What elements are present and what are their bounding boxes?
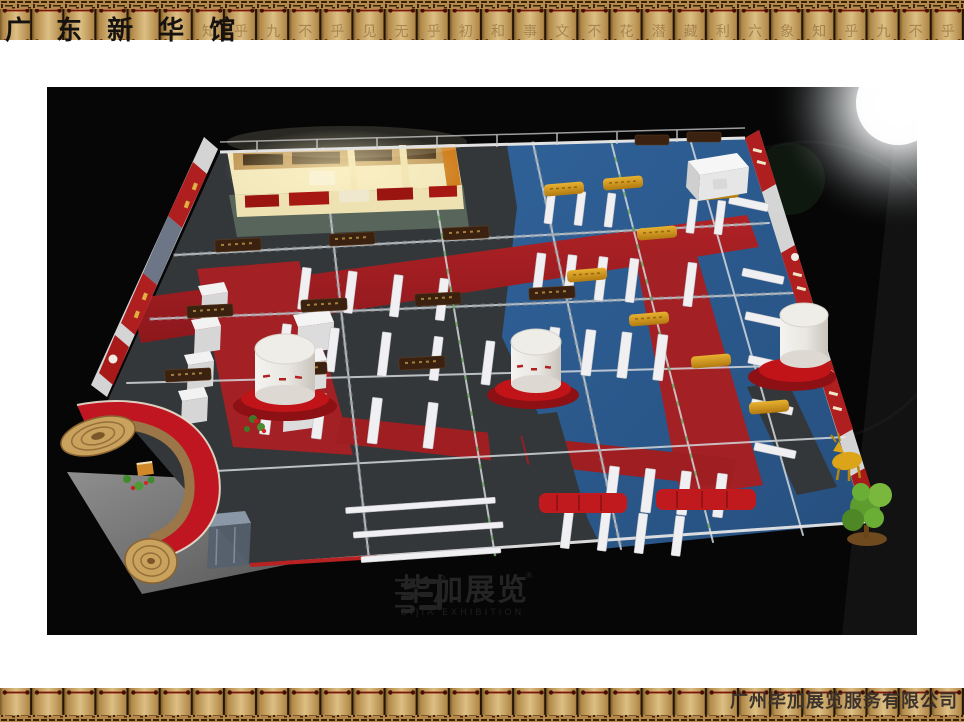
footer-company-name: 广州毕加展览服务有限公司 bbox=[730, 687, 958, 713]
top-border: 知乎九不乎见无乎初和事文不花潜藏利六象知乎九不乎 广 东 新 华 馆 bbox=[0, 0, 964, 40]
meander-band bbox=[0, 715, 964, 722]
exhibition-render: 毕加展览 BIJIA EXHIBITION ® bbox=[47, 87, 917, 635]
render-scene bbox=[47, 87, 917, 635]
bottom-border: 广州毕加展览服务有限公司 bbox=[0, 682, 964, 722]
slide-root: 知乎九不乎见无乎初和事文不花潜藏利六象知乎九不乎 广 东 新 华 馆 bbox=[0, 0, 964, 722]
white-box bbox=[686, 153, 749, 201]
meander-band bbox=[0, 0, 964, 9]
illuminated-room bbox=[224, 126, 467, 217]
page-title: 广 东 新 华 馆 bbox=[5, 10, 243, 47]
